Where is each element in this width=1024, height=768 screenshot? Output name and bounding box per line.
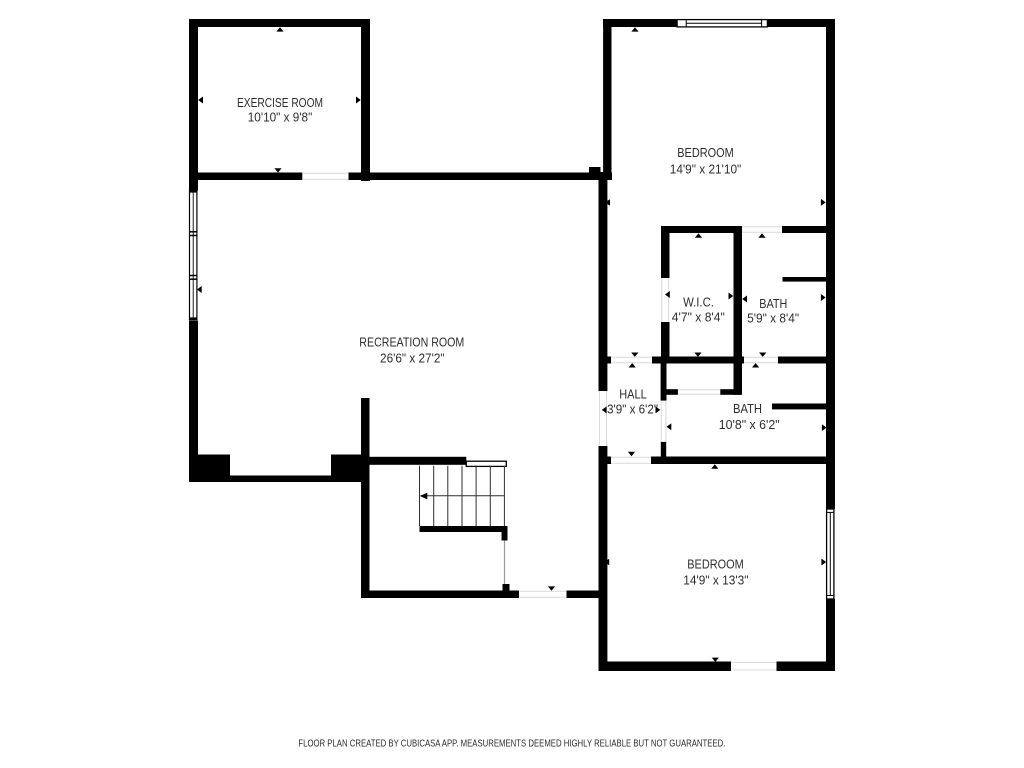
svg-text:BEDROOM: BEDROOM	[687, 558, 744, 572]
svg-text:EXERCISE ROOM: EXERCISE ROOM	[237, 96, 323, 110]
svg-text:W.I.C.: W.I.C.	[683, 295, 714, 309]
svg-text:14'9" x 21'10": 14'9" x 21'10"	[670, 162, 742, 176]
svg-text:BATH: BATH	[759, 297, 787, 311]
svg-text:3'9" x 6'2": 3'9" x 6'2"	[607, 403, 658, 417]
svg-text:BATH: BATH	[733, 402, 762, 416]
svg-text:RECREATION ROOM: RECREATION ROOM	[359, 335, 464, 349]
svg-text:14'9" x 13'3": 14'9" x 13'3"	[683, 573, 748, 587]
svg-text:HALL: HALL	[619, 387, 647, 401]
svg-text:10'8" x 6'2": 10'8" x 6'2"	[719, 418, 780, 432]
svg-text:26'6" x 27'2": 26'6" x 27'2"	[380, 352, 445, 366]
svg-text:10'10" x 9'8": 10'10" x 9'8"	[248, 110, 313, 124]
svg-text:5'9" x 8'4": 5'9" x 8'4"	[747, 312, 799, 326]
svg-text:4'7" x 8'4": 4'7" x 8'4"	[672, 310, 725, 324]
svg-text:BEDROOM: BEDROOM	[677, 146, 734, 160]
svg-text:FLOOR PLAN CREATED BY CUBICASA: FLOOR PLAN CREATED BY CUBICASA APP. MEAS…	[298, 739, 725, 750]
